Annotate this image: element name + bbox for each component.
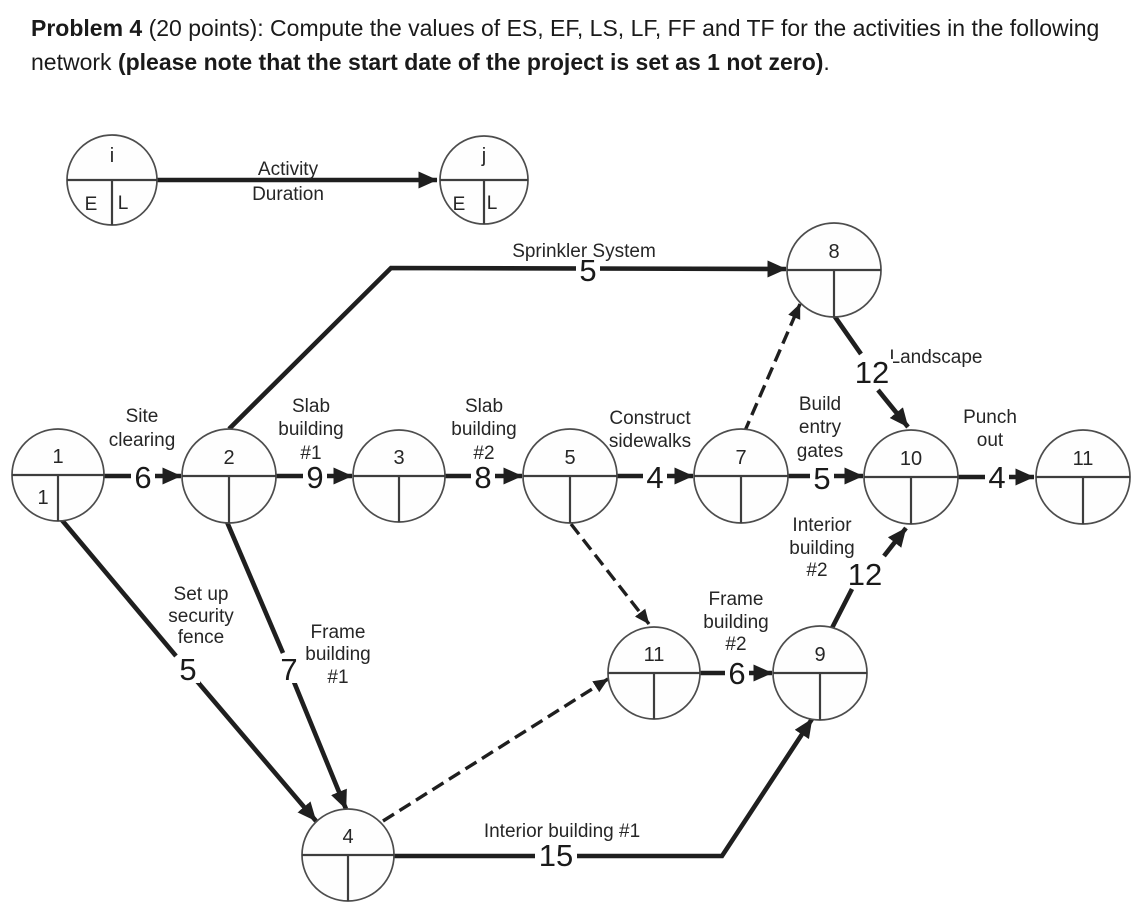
svg-text:E: E bbox=[85, 194, 98, 215]
svg-text:4: 4 bbox=[988, 460, 1005, 495]
svg-text:building: building bbox=[305, 644, 371, 665]
svg-text:Set up: Set up bbox=[174, 584, 229, 605]
svg-text:j: j bbox=[481, 145, 486, 167]
svg-text:11: 11 bbox=[1073, 448, 1094, 470]
svg-text:out: out bbox=[977, 430, 1004, 451]
svg-text:#1: #1 bbox=[327, 667, 348, 688]
svg-text:15: 15 bbox=[539, 838, 573, 873]
svg-text:6: 6 bbox=[728, 656, 745, 691]
svg-text:12: 12 bbox=[855, 355, 889, 390]
svg-text:5: 5 bbox=[579, 253, 596, 288]
svg-text:#2: #2 bbox=[806, 560, 827, 581]
svg-text:E: E bbox=[453, 194, 466, 215]
svg-text:12: 12 bbox=[848, 557, 882, 592]
svg-text:Slab: Slab bbox=[465, 396, 503, 417]
svg-text:9: 9 bbox=[306, 460, 323, 495]
svg-text:1: 1 bbox=[37, 487, 48, 509]
svg-text:5: 5 bbox=[813, 461, 830, 496]
svg-text:9: 9 bbox=[814, 644, 825, 666]
svg-text:gates: gates bbox=[797, 441, 843, 462]
svg-text:4: 4 bbox=[646, 460, 663, 495]
svg-text:Slab: Slab bbox=[292, 396, 330, 417]
svg-text:6: 6 bbox=[134, 460, 151, 495]
svg-text:clearing: clearing bbox=[109, 430, 176, 451]
svg-text:5: 5 bbox=[179, 652, 196, 687]
svg-text:Frame: Frame bbox=[709, 589, 764, 610]
svg-text:Activity: Activity bbox=[258, 159, 319, 180]
svg-text:2: 2 bbox=[223, 447, 234, 469]
svg-text:fence: fence bbox=[178, 627, 224, 648]
svg-text:Construct: Construct bbox=[609, 408, 691, 429]
svg-text:11: 11 bbox=[644, 644, 665, 666]
svg-text:8: 8 bbox=[474, 460, 491, 495]
svg-text:7: 7 bbox=[735, 447, 746, 469]
svg-text:Punch: Punch bbox=[963, 407, 1017, 428]
svg-text:#2: #2 bbox=[725, 634, 746, 655]
svg-text:7: 7 bbox=[280, 652, 297, 687]
svg-text:3: 3 bbox=[393, 447, 404, 469]
svg-text:building: building bbox=[703, 612, 769, 633]
svg-text:building: building bbox=[789, 538, 855, 559]
svg-text:4: 4 bbox=[342, 826, 353, 848]
svg-text:Interior: Interior bbox=[792, 515, 852, 536]
svg-text:L: L bbox=[487, 193, 498, 214]
svg-text:Duration: Duration bbox=[252, 184, 324, 205]
svg-text:security: security bbox=[168, 606, 234, 627]
svg-text:Landscape: Landscape bbox=[890, 347, 983, 368]
svg-text:10: 10 bbox=[900, 448, 922, 470]
svg-text:building: building bbox=[451, 419, 517, 440]
svg-text:building: building bbox=[278, 419, 344, 440]
svg-text:Build: Build bbox=[799, 394, 841, 415]
svg-text:1: 1 bbox=[52, 446, 63, 468]
svg-text:i: i bbox=[110, 145, 114, 167]
svg-text:L: L bbox=[118, 193, 129, 214]
svg-text:sidewalks: sidewalks bbox=[609, 431, 691, 452]
svg-text:8: 8 bbox=[828, 241, 839, 263]
svg-text:Site: Site bbox=[126, 406, 159, 427]
svg-text:5: 5 bbox=[564, 447, 575, 469]
svg-text:entry: entry bbox=[799, 417, 842, 438]
svg-text:Frame: Frame bbox=[311, 622, 366, 643]
